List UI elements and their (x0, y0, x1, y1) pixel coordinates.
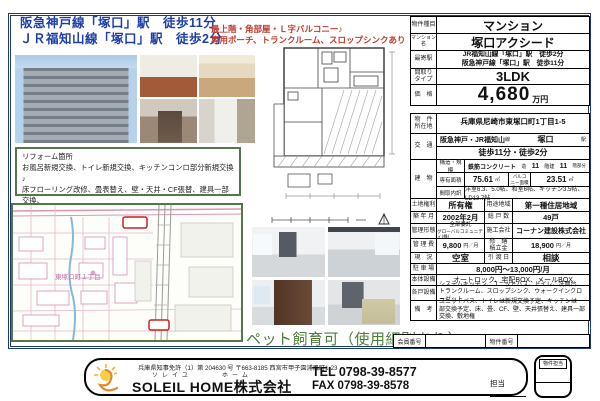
location-map: 東塚口町１丁目 (11, 203, 243, 342)
photo-entrance-lobby (140, 55, 197, 97)
notes-label: 備 考 (411, 301, 437, 320)
nearest-station-value: JR福知山線「塚口」駅 徒歩2分 阪急神戸線「塚口」駅 徒歩11分 (437, 51, 589, 68)
row-built-date: 築 年 月 2002年2月 総 戸 数 49戸 (411, 211, 589, 223)
member-number-field (426, 335, 486, 347)
access-label: 交 通 (411, 134, 437, 159)
total-units-value: 49戸 (513, 212, 589, 223)
address-label: 物 件 所在地 (411, 114, 437, 133)
main-facilities-label: 本体設備 (411, 275, 437, 285)
layout-value: 洋室6.3、5.0帖、和室6帖、キッチン3.5帖、LD13.7帖 (465, 187, 589, 198)
map-district-label: 東塚口町１丁目 (55, 272, 101, 281)
photo-living-room (199, 55, 255, 97)
row-access: 交 通 阪急神戸・JR福知山 線 塚口 駅 徒歩11分・徒歩2分 (411, 133, 589, 159)
station-line-1: 阪急神戸線「塚口」駅 徒歩11分 (20, 16, 222, 32)
layout-subrow: 間取内訳 洋室6.3、5.0帖、和室6帖、キッチン3.5帖、LD13.7帖 (437, 187, 589, 198)
property-number-field (518, 335, 589, 347)
fax-number: FAX 0798-39-8578 (312, 380, 409, 392)
current-status-value: 空室 (437, 253, 485, 263)
row-address: 物 件 所在地 兵庫県尼崎市東塚口町1丁目1-5 (411, 114, 589, 133)
row-land-rights: 土地権利 所有権 用途地域 第一種住居地域 (411, 198, 589, 211)
stamp-box-label: 物件担当 (539, 359, 567, 369)
reform-line-1: お風呂新規交換、トイレ新規交換、キッチンコンロ部分新規交換♪ (22, 163, 234, 185)
property-type-value: マンション (437, 17, 589, 33)
exclusive-area-label: 専有面積 (437, 173, 465, 186)
handover-value: 相談 (513, 253, 589, 263)
row-management-fee: 管 理 費 9,800 円／月 修 繕 積立金 18,900 円／月 (411, 238, 589, 252)
photo-living-accent-wall (252, 227, 325, 277)
photo-kitchen (252, 280, 325, 325)
reform-box: リフォーム箇所 お風呂新規交換、トイレ新規交換、キッチンコンロ部分新規交換♪ 床… (15, 147, 241, 196)
member-number-row: 会員番号 物件番号 (393, 334, 590, 348)
map-property-marker (123, 217, 147, 228)
floor-plan-type-value: 3LDK (437, 69, 589, 84)
parking-label: 駐 車 場 (411, 264, 437, 274)
mansion-name-label: マンション名 (411, 34, 437, 50)
photo-entrance-door (140, 99, 197, 143)
row-current-status: 現 況 空室 引 渡 日 相談 (411, 252, 589, 263)
row-floor-plan-type: 間取り タイプ 3LDK (411, 68, 589, 84)
property-detail-table: 物 件 所在地 兵庫県尼崎市東塚口町1丁目1-5 交 通 阪急神戸・JR福知山 … (410, 113, 590, 321)
phone-number: TEL 0798-39-8577 (312, 365, 417, 379)
map-image: 東塚口町１丁目 (13, 205, 241, 340)
map-station-marker (149, 320, 169, 330)
access-lines: 阪急神戸・JR福知山 線 塚口 駅 (437, 134, 589, 147)
repair-reserve-label: 修 繕 積立金 (485, 239, 513, 252)
handover-label: 引 渡 日 (485, 253, 513, 263)
row-unit-facilities: 各戸設備 システムキッチン、ユニットバス、トイレ、洗面台、トランクルーム、スロッ… (411, 285, 589, 300)
property-summary-table: 物件種目 マンション マンション名 塚口アクシード 最寄駅 JR福知山線「塚口」… (410, 16, 590, 106)
structure-label: 構造・規模 (437, 160, 465, 172)
floor-plan-image (266, 44, 400, 212)
floor-plan-type-label: 間取り タイプ (411, 69, 437, 84)
property-type-label: 物件種目 (411, 17, 437, 33)
zoning-label: 用途地域 (485, 199, 513, 211)
station-line-2: ＪＲ福知山線「塚口」駅 徒歩2分 (20, 32, 222, 48)
property-stamp-box: 物件担当 (534, 355, 572, 398)
unit-facilities-label: 各戸設備 (411, 286, 437, 300)
parking-value: 8,000円～13,000円/月 (437, 264, 589, 274)
row-mansion-name: マンション名 塚口アクシード (411, 33, 589, 50)
stamp-box-divider (536, 382, 570, 383)
mansion-name-value: 塚口アクシード (437, 34, 589, 50)
land-rights-value: 所有権 (437, 199, 485, 211)
address-value: 兵庫県尼崎市東塚口町1丁目1-5 (437, 114, 589, 133)
nearest-station-label: 最寄駅 (411, 51, 437, 68)
management-label: 管理形態 (411, 224, 437, 238)
scale-bar-and-compass-icon (268, 213, 400, 226)
member-number-label: 会員番号 (394, 335, 426, 347)
current-status-label: 現 況 (411, 253, 437, 263)
notes-value: ユニットバス、トイレは新規交換予定、キッチンは一部交換予定、床、畳、CF、壁、天… (437, 301, 589, 320)
layout-label: 間取内訳 (437, 187, 465, 198)
highlight-line-1: 最上階・角部屋・Ｌ字バルコニー♪ (211, 24, 405, 35)
reform-title: リフォーム箇所 (22, 152, 234, 163)
company-name: SOLEIL HOME株式会社 (132, 377, 292, 397)
row-nearest-station: 最寄駅 JR福知山線「塚口」駅 徒歩2分 阪急神戸線「塚口」駅 徒歩11分 (411, 50, 589, 68)
land-rights-label: 土地権利 (411, 199, 437, 211)
row-notes: 備 考 ユニットバス、トイレは新規交換予定、キッチンは一部交換予定、床、畳、CF… (411, 300, 589, 320)
built-date-label: 築 年 月 (411, 212, 437, 223)
row-management: 管理形態 全部委託 グローバルコミュニティ(株) 施工会社 コーナン建設株式会社 (411, 223, 589, 238)
photo-building-exterior (15, 55, 137, 143)
zoning-value: 第一種住居地域 (513, 199, 589, 211)
photo-tatami-room (328, 280, 400, 325)
builder-value: コーナン建設株式会社 (513, 224, 589, 238)
structure-subrow: 構造・規模 鉄筋コンクリート 造 11 階建 11 階部分 (437, 160, 589, 173)
property-number-label: 物件番号 (486, 335, 518, 347)
header-station-access: 阪急神戸線「塚口」駅 徒歩11分 ＪＲ福知山線「塚口」駅 徒歩2分 (20, 16, 222, 47)
row-property-type: 物件種目 マンション (411, 17, 589, 33)
company-footer: 兵庫県知事免許（1）第 204630 号 〒663-8185 西宮市甲子園浦風町… (84, 358, 528, 396)
management-value: 全部委託 グローバルコミュニティ(株) (437, 224, 485, 238)
row-building: 建 物 構造・規模 鉄筋コンクリート 造 11 階建 11 階部分 専有面積 (411, 159, 589, 198)
row-price: 価 格 4,680 万円 (411, 84, 589, 105)
price-value: 4,680 万円 (437, 85, 589, 105)
builder-label: 施工会社 (485, 224, 513, 238)
photo-living-wide (328, 227, 400, 277)
building-label: 建 物 (411, 160, 437, 198)
management-fee-label: 管 理 費 (411, 239, 437, 252)
company-logo-sun-icon (92, 363, 132, 393)
management-fee-value: 9,800 円／月 (437, 239, 485, 252)
total-units-label: 総 戸 数 (485, 212, 513, 223)
repair-reserve-value: 18,900 円／月 (513, 239, 589, 252)
price-label: 価 格 (411, 85, 437, 105)
staff-in-charge-field: 担当 (490, 378, 526, 397)
row-parking: 駐 車 場 8,000円～13,000円/月 (411, 263, 589, 274)
photo-kitchen-hallway (199, 99, 255, 143)
